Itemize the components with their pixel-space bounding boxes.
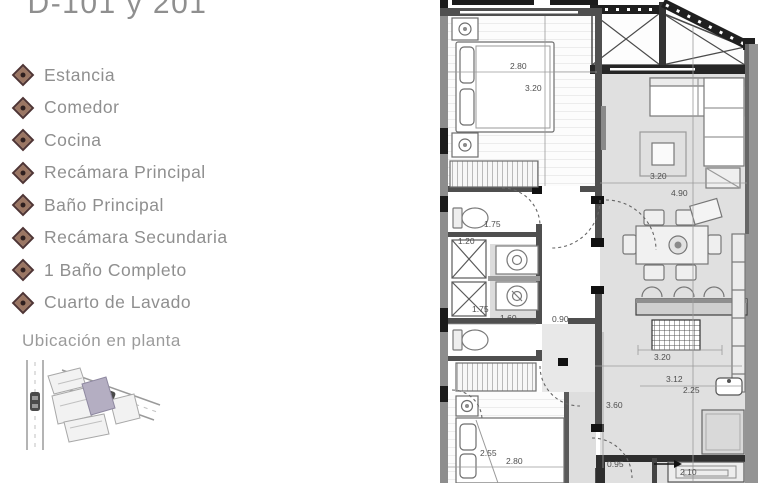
- dim-label: 2.55: [480, 448, 497, 458]
- site-plan-thumbnail: [8, 356, 168, 460]
- unit-title: D-101 y 201: [0, 0, 235, 21]
- legend-item-comedor: Comedor: [12, 92, 228, 125]
- toilet-tank: [453, 330, 462, 350]
- brochure-page: D-101 y 201 Estancia Comedor Cocina Recá…: [0, 0, 770, 483]
- fridge: [702, 410, 744, 454]
- legend-label: Recámara Secundaria: [44, 227, 228, 248]
- laundry-room: [452, 240, 540, 316]
- door-jamb: [591, 238, 604, 247]
- diamond-bullet-icon: [12, 96, 35, 119]
- diamond-bullet-icon: [12, 129, 35, 152]
- bath-principal: [453, 208, 488, 228]
- diamond-bullet-icon: [12, 194, 35, 217]
- dim-label: 3.20: [525, 83, 542, 93]
- chair: [708, 235, 721, 254]
- legend-item-cocina: Cocina: [12, 124, 228, 157]
- master-closet: [450, 161, 538, 187]
- door-jamb: [558, 358, 568, 366]
- legend-label: Cocina: [44, 130, 101, 151]
- faucet-icon: [727, 379, 731, 383]
- diamond-bullet-icon: [12, 226, 35, 249]
- terrace-floor: [600, 13, 745, 65]
- coffee-table: [652, 143, 674, 165]
- toilet-tank: [453, 208, 462, 228]
- car-icon: [30, 392, 40, 411]
- vertical-road: [27, 360, 43, 450]
- chair: [623, 235, 636, 254]
- dim-label: 3.20: [650, 171, 667, 181]
- dim-label: 1.75: [472, 304, 489, 314]
- legend-label: Recámara Principal: [44, 162, 206, 183]
- legend-label: Cuarto de Lavado: [44, 292, 191, 313]
- bedroom-window: [460, 11, 578, 14]
- room-legend: Estancia Comedor Cocina Recámara Princip…: [12, 59, 228, 319]
- dim-label: 1.20: [458, 236, 475, 246]
- legend-item-bano-completo: 1 Baño Completo: [12, 254, 228, 287]
- dim-label: 1.75: [484, 219, 501, 229]
- master-bedroom: [450, 18, 554, 187]
- info-panel: D-101 y 201 Estancia Comedor Cocina Recá…: [0, 0, 440, 483]
- diamond-bullet-icon: [12, 64, 35, 87]
- diamond-bullet-icon: [12, 161, 35, 184]
- floor-plan: 2.80 3.20 3.20 4.90 1.75 1.20 1.75 1.60 …: [440, 0, 770, 483]
- pillow: [460, 454, 476, 478]
- legend-label: Baño Principal: [44, 195, 164, 216]
- bedroom2-wall: [564, 392, 569, 483]
- chair: [644, 265, 664, 280]
- toilet-icon: [462, 330, 488, 350]
- legend-item-bano-principal: Baño Principal: [12, 189, 228, 222]
- legend-item-cuarto-lavado: Cuarto de Lavado: [12, 287, 228, 320]
- location-label: Ubicación en planta: [22, 331, 181, 351]
- dim-label: 1.60: [500, 313, 517, 323]
- tv-console: [601, 106, 606, 150]
- dim-label: 0.90: [552, 314, 569, 324]
- legend-item-estancia: Estancia: [12, 59, 228, 92]
- dim-label: 4.90: [671, 188, 688, 198]
- diamond-bullet-icon: [12, 259, 35, 282]
- chair: [644, 210, 664, 225]
- bath-completo: [453, 330, 488, 350]
- dim-label: 3.12: [666, 374, 683, 384]
- legend-label: Comedor: [44, 97, 119, 118]
- bedroom2-closet: [456, 363, 536, 391]
- diamond-bullet-icon: [12, 291, 35, 314]
- pillow: [460, 424, 476, 450]
- dim-label: 3.60: [606, 400, 623, 410]
- bedroom-living-wall: [595, 8, 602, 188]
- dim-label: 2.80: [510, 61, 527, 71]
- sofa-right: [704, 78, 744, 166]
- legend-label: Estancia: [44, 65, 115, 86]
- legend-label: 1 Baño Completo: [44, 260, 187, 281]
- pillow: [460, 89, 474, 125]
- dim-label: 2.25: [683, 385, 700, 395]
- cabinets: [732, 234, 745, 392]
- door-jamb: [591, 196, 604, 204]
- dim-label: 3.20: [654, 352, 671, 362]
- door-jamb: [591, 286, 604, 294]
- hall-floor: [542, 322, 596, 392]
- dim-label: 2.10: [680, 467, 697, 477]
- pillow: [460, 47, 474, 83]
- legend-item-recamara-principal: Recámara Principal: [12, 157, 228, 190]
- outer-wall-left: [440, 8, 448, 483]
- dim-label: 2.80: [506, 456, 523, 466]
- legend-item-recamara-secundaria: Recámara Secundaria: [12, 222, 228, 255]
- door-jamb: [591, 424, 604, 432]
- sliding-door: [610, 68, 695, 71]
- dim-label: 0.95: [607, 459, 624, 469]
